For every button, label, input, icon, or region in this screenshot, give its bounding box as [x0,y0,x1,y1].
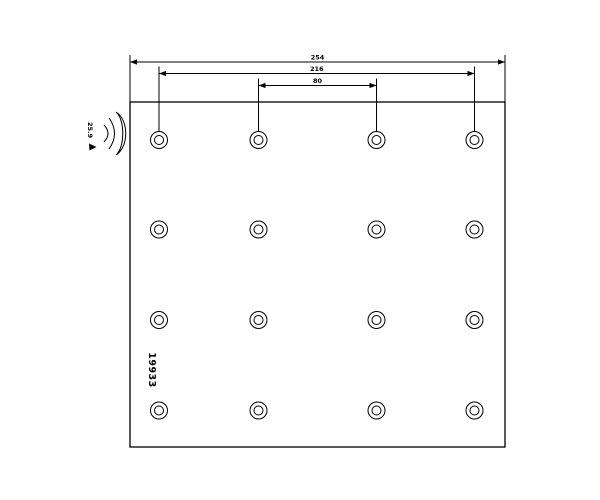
dimension-overall-width: 254 [130,54,505,65]
rivet-hole [151,132,168,149]
rivet-hole [368,221,385,238]
dimension-lines-layer: 25421680 [130,54,505,89]
rivet-hole-outer-circle [368,402,385,419]
rivet-hole [250,312,267,329]
rivet-hole [466,221,483,238]
rivet-hole [466,312,483,329]
rivet-hole-outer-circle [250,312,267,329]
curvature-crescent [116,112,126,155]
part-number: 19933 [146,352,157,388]
dimension-outer-hole-spacing: 216 [159,65,475,76]
arrowhead-left-icon [259,83,266,88]
rivet-hole-outer-circle [151,132,168,149]
rivet-hole-outer-circle [466,132,483,149]
rivet-hole [368,132,385,149]
rivet-hole-outer-circle [250,221,267,238]
arrowhead-right-icon [468,71,475,76]
rivet-hole-outer-circle [250,402,267,419]
rivet-hole-outer-circle [466,402,483,419]
rivet-hole-outer-circle [368,132,385,149]
rivet-hole-outer-circle [151,221,168,238]
dimension-inner-hole-spacing: 80 [259,77,377,88]
rivet-hole [151,312,168,329]
rivet-hole [250,402,267,419]
dimension-label: 216 [310,65,324,73]
arrowhead-left-icon [159,71,166,76]
arrowhead-right-icon [498,59,505,64]
dimension-label: 80 [313,77,323,85]
rivet-hole [250,221,267,238]
rivet-hole-outer-circle [250,132,267,149]
rivet-hole-outer-circle [368,221,385,238]
lining-plate-outline [130,102,505,447]
curvature-arrowhead-icon [89,144,97,151]
arrowhead-left-icon [130,59,137,64]
rivet-hole-outer-circle [368,312,385,329]
rivet-hole-outer-circle [151,402,168,419]
rivet-hole [466,132,483,149]
rivet-hole [250,132,267,149]
curvature-arc-small [104,125,108,142]
technical-drawing: 25421680 25.9 19933 [0,0,600,500]
rivet-hole [151,221,168,238]
rivet-hole-outer-circle [466,312,483,329]
drawing-page: 25421680 25.9 19933 [0,0,600,500]
rivet-hole [151,402,168,419]
rivet-hole-outer-circle [466,221,483,238]
thickness-dimension: 25.9 [86,122,94,139]
rivet-hole [368,312,385,329]
rivet-hole [466,402,483,419]
curvature-arc-medium [109,118,115,149]
dimension-label: 254 [311,54,325,62]
rivet-hole-outer-circle [151,312,168,329]
arrowhead-right-icon [370,83,377,88]
rivet-hole [368,402,385,419]
